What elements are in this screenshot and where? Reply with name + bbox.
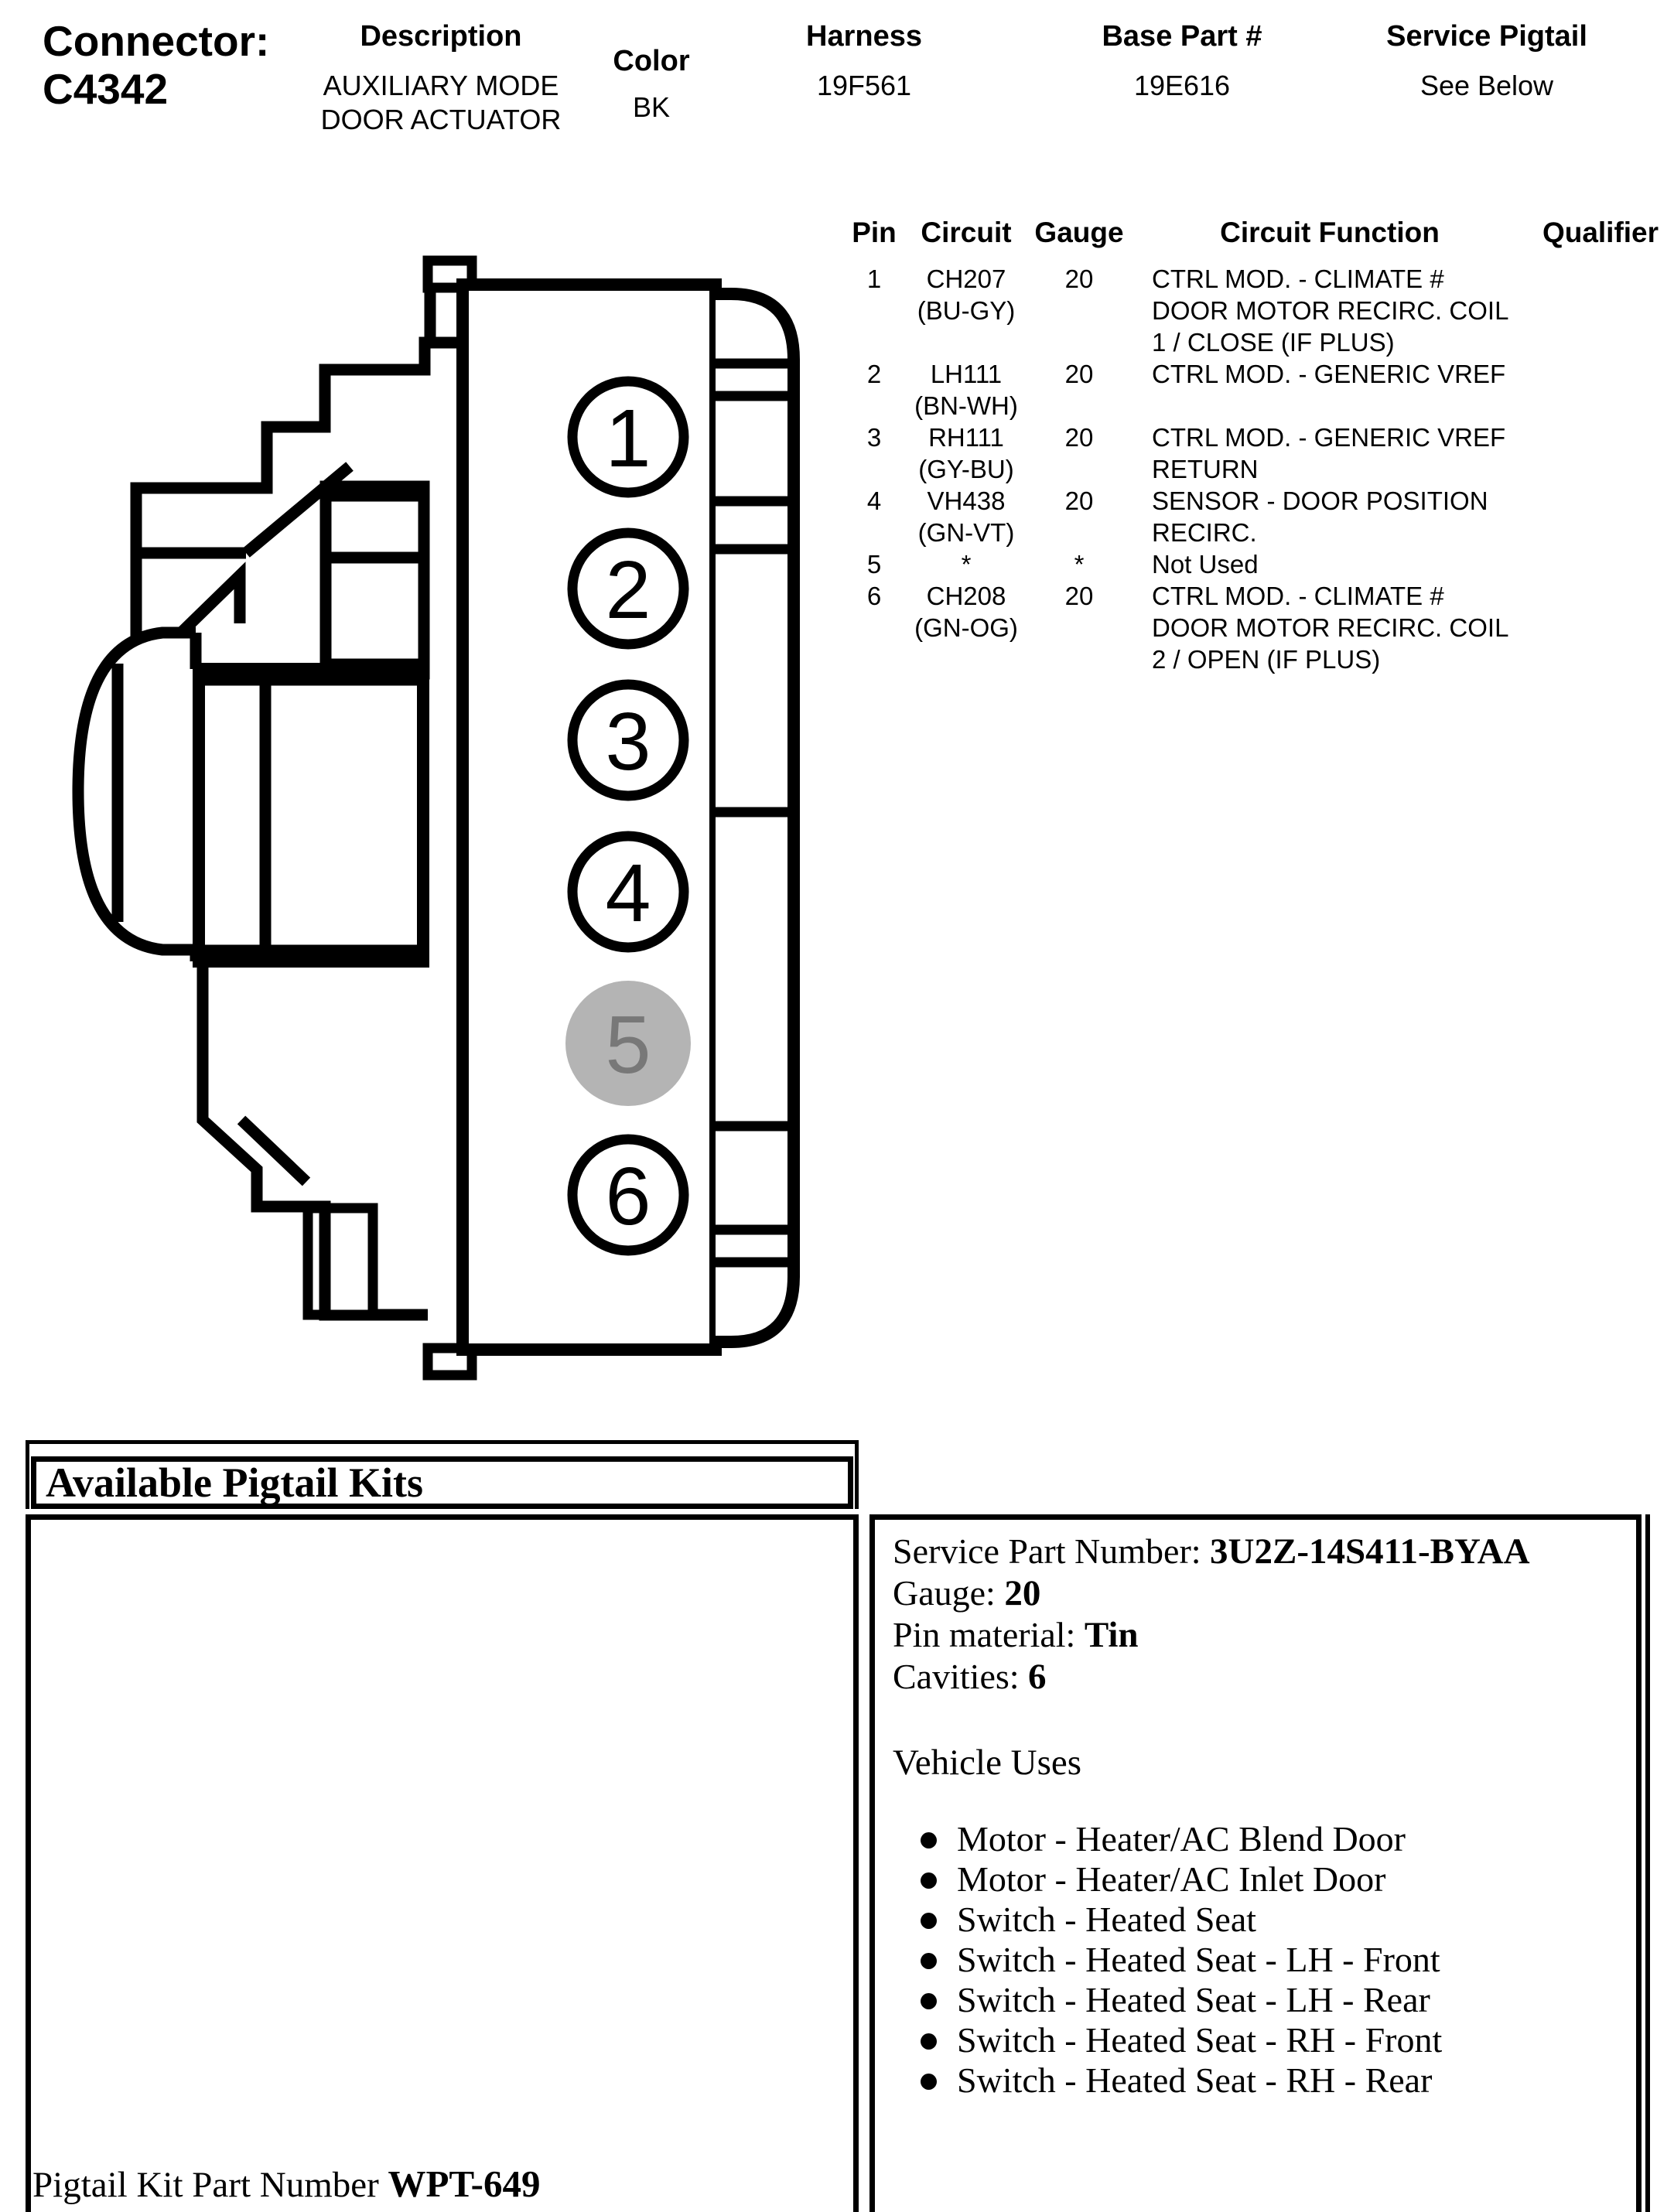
header-col-base-part: Base Part # 19E616 — [1081, 20, 1283, 103]
table-row: 6CH208(GN-OG)20CTRL MOD. - CLIMATE #DOOR… — [846, 580, 1670, 675]
col-header-pin: Pin — [846, 217, 903, 249]
kit-part-label: Pigtail Kit Part Number — [32, 2165, 388, 2205]
cell-qualifier — [1531, 580, 1670, 675]
col-header-circuit-function: Circuit Function — [1129, 217, 1531, 249]
circuit-id: * — [903, 548, 1030, 580]
page-right-rule — [1645, 1514, 1650, 2212]
col-header-circuit: Circuit — [903, 217, 1030, 249]
circuit-id: CH208 — [903, 580, 1030, 612]
detail-value: 20 — [1004, 1573, 1040, 1613]
cell-pin: 3 — [846, 422, 903, 485]
function-line: CTRL MOD. - CLIMATE # — [1152, 580, 1531, 612]
lower-window-box — [199, 669, 423, 961]
detail-value: Tin — [1085, 1615, 1139, 1655]
connector-label: Connector: — [43, 17, 269, 65]
detail-label: Service Part Number: — [893, 1531, 1210, 1571]
cell-qualifier — [1531, 485, 1670, 548]
lower-small-box — [308, 1208, 373, 1315]
function-line: RETURN — [1152, 453, 1531, 485]
function-line: Not Used — [1152, 548, 1531, 580]
vehicle-use-item: Switch - Heated Seat - RH - Front — [869, 2020, 1635, 2060]
pigtail-kits-box — [26, 1514, 859, 2212]
latch-rungs — [716, 364, 794, 1262]
cell-pin: 4 — [846, 485, 903, 548]
service-pigtail-value: See Below — [1375, 69, 1599, 103]
table-row: 1CH207(BU-GY)20CTRL MOD. - CLIMATE #DOOR… — [846, 263, 1670, 358]
pin-number: 4 — [606, 848, 651, 939]
connector-id: C4342 — [43, 65, 269, 113]
color-label: Color — [589, 45, 713, 78]
vehicle-uses-title: Vehicle Uses — [893, 1742, 1081, 1784]
circuit-color: (BU-GY) — [903, 295, 1030, 326]
base-part-value: 19E616 — [1081, 69, 1283, 103]
cell-gauge: 20 — [1030, 422, 1129, 485]
description-label: Description — [286, 20, 596, 53]
circuit-color: (BN-WH) — [903, 390, 1030, 422]
cell-qualifier — [1531, 358, 1670, 422]
circuit-color: (GY-BU) — [903, 453, 1030, 485]
detail-line: Gauge: 20 — [893, 1572, 1530, 1614]
table-row: 4VH438(GN-VT)20SENSOR - DOOR POSITIONREC… — [846, 485, 1670, 548]
cell-pin: 6 — [846, 580, 903, 675]
table-row: 5**Not Used — [846, 548, 1670, 580]
service-part-details: Service Part Number: 3U2Z-14S411-BYAAGau… — [893, 1531, 1530, 1698]
cell-circuit: LH111(BN-WH) — [903, 358, 1030, 422]
cell-circuit: VH438(GN-VT) — [903, 485, 1030, 548]
cell-pin: 2 — [846, 358, 903, 422]
pigtail-kit-part-line: Pigtail Kit Part Number WPT-649 — [32, 2162, 540, 2206]
function-line: 2 / OPEN (IF PLUS) — [1152, 643, 1531, 675]
function-line: 1 / CLOSE (IF PLUS) — [1152, 326, 1531, 358]
vehicle-uses-list: Motor - Heater/AC Blend DoorMotor - Heat… — [869, 1819, 1635, 2101]
function-line: DOOR MOTOR RECIRC. COIL — [1152, 612, 1531, 643]
pin-number: 2 — [606, 544, 651, 636]
connector-spec-page: Connector: C4342 Description AUXILIARY M… — [0, 0, 1674, 2212]
pin-number: 3 — [606, 696, 651, 787]
pigtail-section-title: Available Pigtail Kits — [36, 1462, 848, 1503]
col-header-qualifier: Qualifier — [1531, 217, 1670, 249]
cell-circuit: * — [903, 548, 1030, 580]
cell-gauge: * — [1030, 548, 1129, 580]
connector-title: Connector: C4342 — [43, 17, 269, 113]
cell-circuit-function: SENSOR - DOOR POSITIONRECIRC. — [1129, 485, 1531, 548]
detail-line: Cavities: 6 — [893, 1656, 1530, 1698]
function-line: CTRL MOD. - CLIMATE # — [1152, 263, 1531, 295]
table-row: 2LH111(BN-WH)20CTRL MOD. - GENERIC VREF — [846, 358, 1670, 422]
detail-value: 6 — [1028, 1657, 1047, 1697]
cell-qualifier — [1531, 422, 1670, 485]
circuit-color: (GN-VT) — [903, 517, 1030, 548]
cell-circuit: CH208(GN-OG) — [903, 580, 1030, 675]
harness-label: Harness — [779, 20, 949, 53]
detail-line: Pin material: Tin — [893, 1614, 1530, 1656]
function-line: DOOR MOTOR RECIRC. COIL — [1152, 295, 1531, 326]
pin-number: 6 — [606, 1151, 651, 1242]
cell-circuit: RH111(GY-BU) — [903, 422, 1030, 485]
circuit-id: CH207 — [903, 263, 1030, 295]
detail-value: 3U2Z-14S411-BYAA — [1210, 1531, 1530, 1572]
header-col-harness: Harness 19F561 — [779, 20, 949, 103]
circuit-id: RH111 — [903, 422, 1030, 453]
pigtail-header-box: Available Pigtail Kits — [31, 1456, 853, 1509]
cell-circuit-function: CTRL MOD. - CLIMATE #DOOR MOTOR RECIRC. … — [1129, 580, 1531, 675]
kit-part-number: WPT-649 — [388, 2163, 541, 2205]
cell-gauge: 20 — [1030, 485, 1129, 548]
function-line: RECIRC. — [1152, 517, 1531, 548]
color-value: BK — [589, 90, 713, 125]
circuit-id: LH111 — [903, 358, 1030, 390]
vehicle-use-item: Switch - Heated Seat - LH - Front — [869, 1940, 1635, 1980]
table-row: 3RH111(GY-BU)20CTRL MOD. - GENERIC VREFR… — [846, 422, 1670, 485]
connector-diagram: 123456 — [46, 247, 843, 1392]
pin-table-header: Pin Circuit Gauge Circuit Function Quali… — [846, 217, 1670, 249]
header-col-color: Color BK — [589, 45, 713, 125]
cell-pin: 1 — [846, 263, 903, 358]
pin-table-rows: 1CH207(BU-GY)20CTRL MOD. - CLIMATE #DOOR… — [846, 263, 1670, 675]
detail-label: Pin material: — [893, 1615, 1085, 1654]
cell-circuit-function: CTRL MOD. - GENERIC VREF — [1129, 358, 1531, 422]
latch-strip — [716, 294, 794, 1342]
cell-circuit-function: CTRL MOD. - GENERIC VREFRETURN — [1129, 422, 1531, 485]
cell-gauge: 20 — [1030, 358, 1129, 422]
vehicle-use-item: Switch - Heated Seat - RH - Rear — [869, 2060, 1635, 2101]
harness-value: 19F561 — [779, 69, 949, 103]
vehicle-use-item: Switch - Heated Seat — [869, 1900, 1635, 1940]
detail-label: Cavities: — [893, 1657, 1028, 1696]
service-pigtail-label: Service Pigtail — [1375, 20, 1599, 53]
header-col-service-pigtail: Service Pigtail See Below — [1375, 20, 1599, 103]
function-line: SENSOR - DOOR POSITION — [1152, 485, 1531, 517]
vehicle-use-item: Switch - Heated Seat - LH - Rear — [869, 1980, 1635, 2020]
cell-pin: 5 — [846, 548, 903, 580]
base-part-label: Base Part # — [1081, 20, 1283, 53]
function-line: CTRL MOD. - GENERIC VREF — [1152, 358, 1531, 390]
cell-circuit-function: Not Used — [1129, 548, 1531, 580]
upper-window-box — [326, 486, 424, 674]
cell-gauge: 20 — [1030, 263, 1129, 358]
pin-number: 5 — [606, 999, 651, 1091]
function-line: CTRL MOD. - GENERIC VREF — [1152, 422, 1531, 453]
pin-table: Pin Circuit Gauge Circuit Function Quali… — [846, 217, 1670, 675]
vehicle-use-item: Motor - Heater/AC Blend Door — [869, 1819, 1635, 1859]
description-value: AUXILIARY MODE DOOR ACTUATOR — [286, 69, 596, 137]
pin-number: 1 — [606, 393, 651, 484]
detail-label: Gauge: — [893, 1573, 1004, 1613]
col-header-gauge: Gauge — [1030, 217, 1129, 249]
capsule-bump — [78, 633, 196, 950]
circuit-id: VH438 — [903, 485, 1030, 517]
cell-circuit: CH207(BU-GY) — [903, 263, 1030, 358]
cell-gauge: 20 — [1030, 580, 1129, 675]
cell-qualifier — [1531, 263, 1670, 358]
circuit-color: (GN-OG) — [903, 612, 1030, 643]
cell-circuit-function: CTRL MOD. - CLIMATE #DOOR MOTOR RECIRC. … — [1129, 263, 1531, 358]
header-col-description: Description AUXILIARY MODE DOOR ACTUATOR — [286, 20, 596, 137]
vehicle-use-item: Motor - Heater/AC Inlet Door — [869, 1859, 1635, 1900]
cell-qualifier — [1531, 548, 1670, 580]
detail-line: Service Part Number: 3U2Z-14S411-BYAA — [893, 1531, 1530, 1572]
